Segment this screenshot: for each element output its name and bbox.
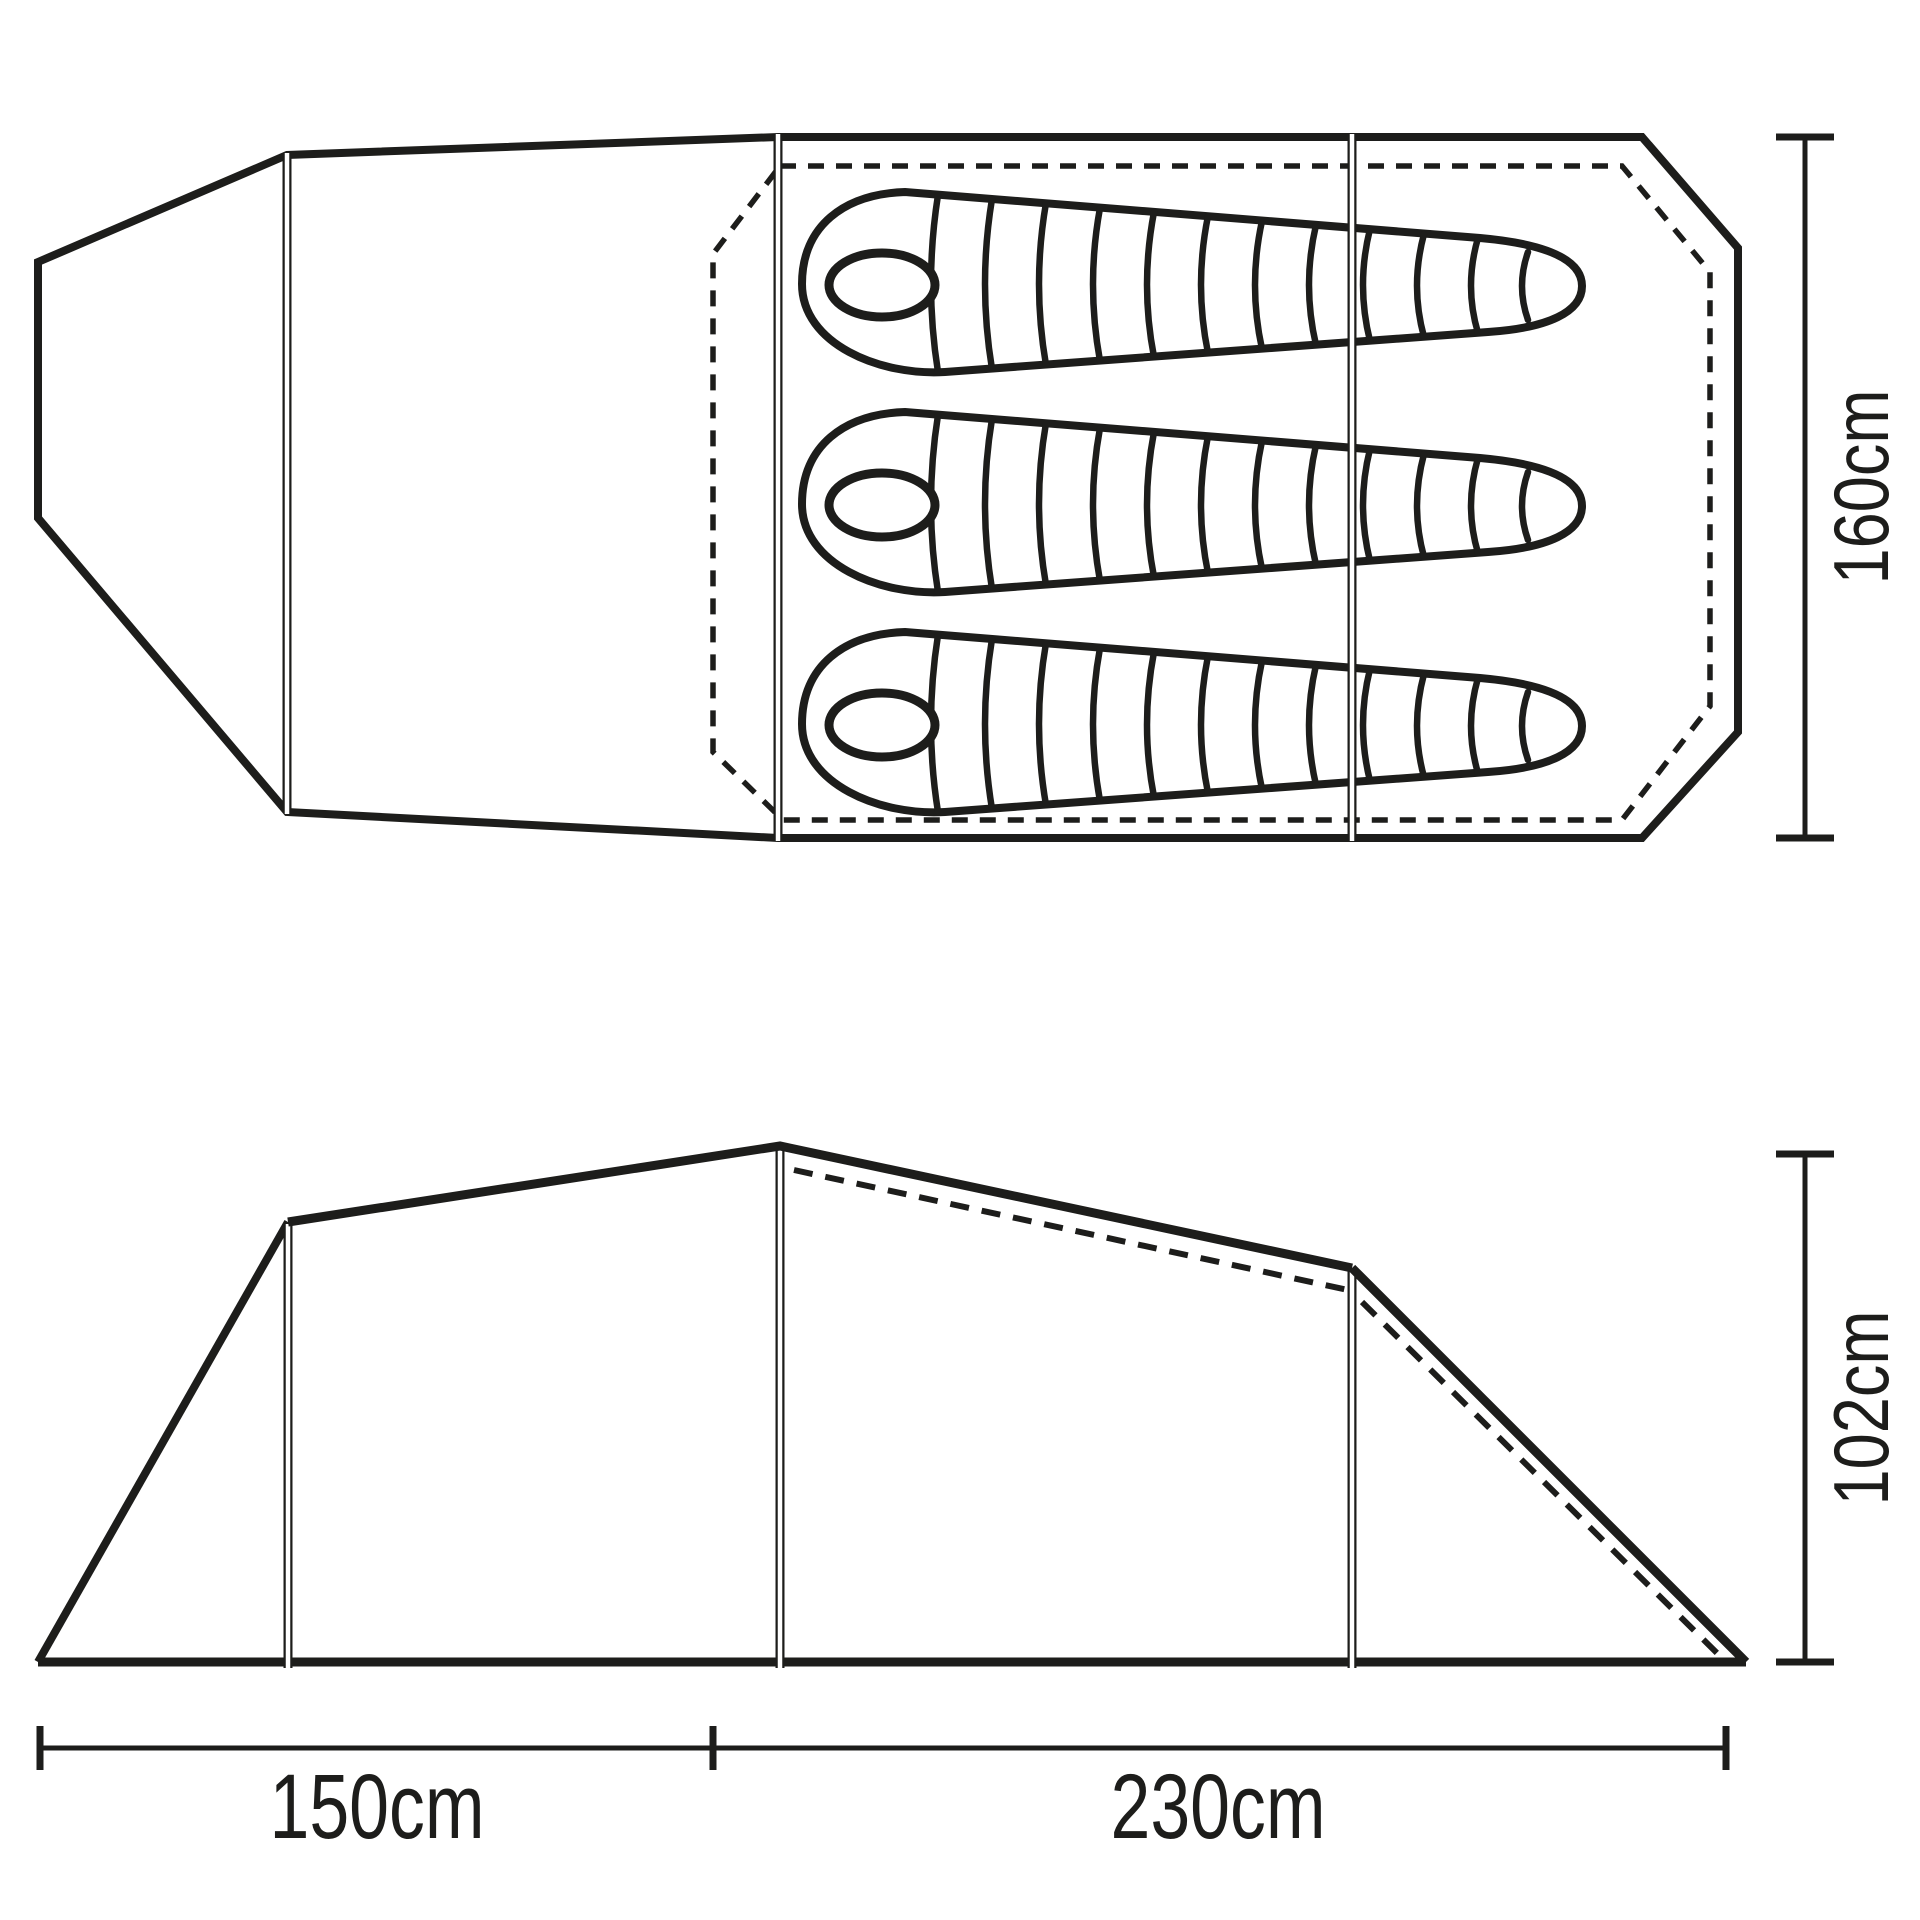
dimension-lengths: 150cm 230cm [40, 1726, 1726, 1858]
tent-diagram-page: 160cm 102 [0, 0, 1920, 1920]
dimension-label-inner-length: 230cm [1111, 1756, 1326, 1858]
inner-tent-dashed-roof [794, 1170, 1348, 1290]
dimension-label-height: 102cm [1817, 1311, 1905, 1506]
dimension-label-porch-length: 150cm [270, 1756, 485, 1858]
dimension-peak-height: 102cm [1776, 1154, 1905, 1662]
rear-slope [1352, 1268, 1746, 1662]
roof-line [288, 1146, 1352, 1268]
porch-front-slant [38, 1222, 288, 1662]
dimension-label-width: 160cm [1817, 390, 1905, 585]
inner-tent-dashed-slope [1362, 1302, 1720, 1656]
floor-plan-view: 160cm [38, 134, 1905, 841]
side-elevation-view: 102cm 150cm 230cm [38, 1146, 1905, 1858]
dimension-inner-width: 160cm [1776, 137, 1905, 838]
tent-dimensions-diagram: 160cm 102 [0, 0, 1920, 1920]
